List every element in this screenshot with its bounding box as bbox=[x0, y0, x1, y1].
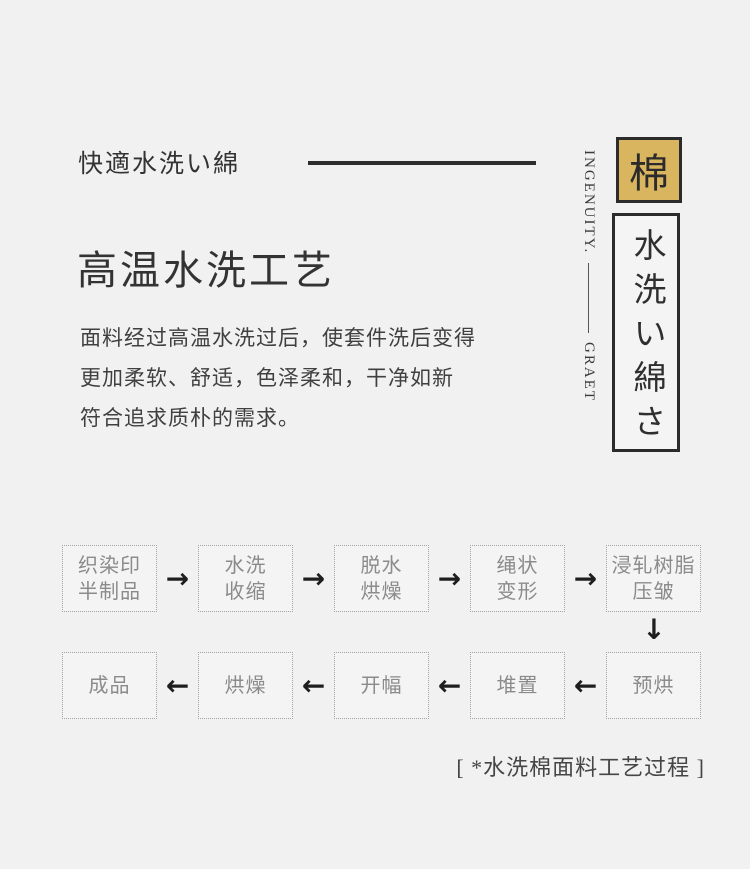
flow-step-box: 浸轧树脂 压皱 bbox=[606, 545, 701, 612]
flow-row-2: 成品 ← 烘燥 ← 开幅 ← 堆置 ← 预烘 bbox=[62, 652, 702, 719]
vertical-label-text: 水洗い綿さ bbox=[622, 216, 670, 449]
flow-row-1: 织染印 半制品 → 水洗 收缩 → 脱水 烘燥 → 绳状 变形 → 浸轧树脂 压… bbox=[62, 545, 702, 612]
arrow-left-icon: ← bbox=[565, 652, 606, 719]
arrow-right-icon: → bbox=[293, 545, 334, 612]
flow-step-box: 开幅 bbox=[334, 652, 429, 719]
subtitle-japanese: 快適水洗い綿 bbox=[78, 144, 240, 180]
cotton-badge-char: 棉 bbox=[629, 141, 669, 199]
vertical-label-box: 水洗い綿さ bbox=[612, 213, 680, 452]
motto-divider-line bbox=[588, 263, 589, 333]
vertical-motto: INGENUITY. GRAET bbox=[580, 150, 597, 430]
arrow-left-icon: ← bbox=[429, 652, 470, 719]
flow-step-box: 堆置 bbox=[470, 652, 565, 719]
flow-step-box: 水洗 收缩 bbox=[198, 545, 293, 612]
arrow-right-icon: → bbox=[429, 545, 470, 612]
arrow-right-icon: → bbox=[565, 545, 606, 612]
flow-connector: ↓ bbox=[62, 612, 702, 652]
flow-step-box: 预烘 bbox=[606, 652, 701, 719]
motto-bottom-text: GRAET bbox=[580, 342, 597, 402]
motto-top-text: INGENUITY. bbox=[580, 150, 597, 254]
description-paragraph: 面料经过高温水洗过后，使套件洗后变得 更加柔软、舒适，色泽柔和，干净如新 符合追… bbox=[80, 318, 550, 438]
flowchart-caption: [ *水洗棉面料工艺过程 ] bbox=[62, 750, 705, 782]
page-title: 高温水洗工艺 bbox=[77, 238, 335, 296]
product-detail-section: 快適水洗い綿 高温水洗工艺 面料经过高温水洗过后，使套件洗后变得 更加柔软、舒适… bbox=[0, 0, 750, 869]
arrow-left-icon: ← bbox=[293, 652, 334, 719]
process-flowchart: 织染印 半制品 → 水洗 收缩 → 脱水 烘燥 → 绳状 变形 → 浸轧树脂 压… bbox=[62, 545, 702, 719]
arrow-left-icon: ← bbox=[157, 652, 198, 719]
divider-line bbox=[308, 161, 536, 165]
flow-step-box: 成品 bbox=[62, 652, 157, 719]
arrow-down-icon: ↓ bbox=[640, 610, 668, 650]
flow-step-box: 织染印 半制品 bbox=[62, 545, 157, 612]
arrow-right-icon: → bbox=[157, 545, 198, 612]
flow-step-box: 脱水 烘燥 bbox=[334, 545, 429, 612]
flow-step-box: 绳状 变形 bbox=[470, 545, 565, 612]
flow-step-box: 烘燥 bbox=[198, 652, 293, 719]
cotton-badge: 棉 bbox=[616, 137, 682, 203]
